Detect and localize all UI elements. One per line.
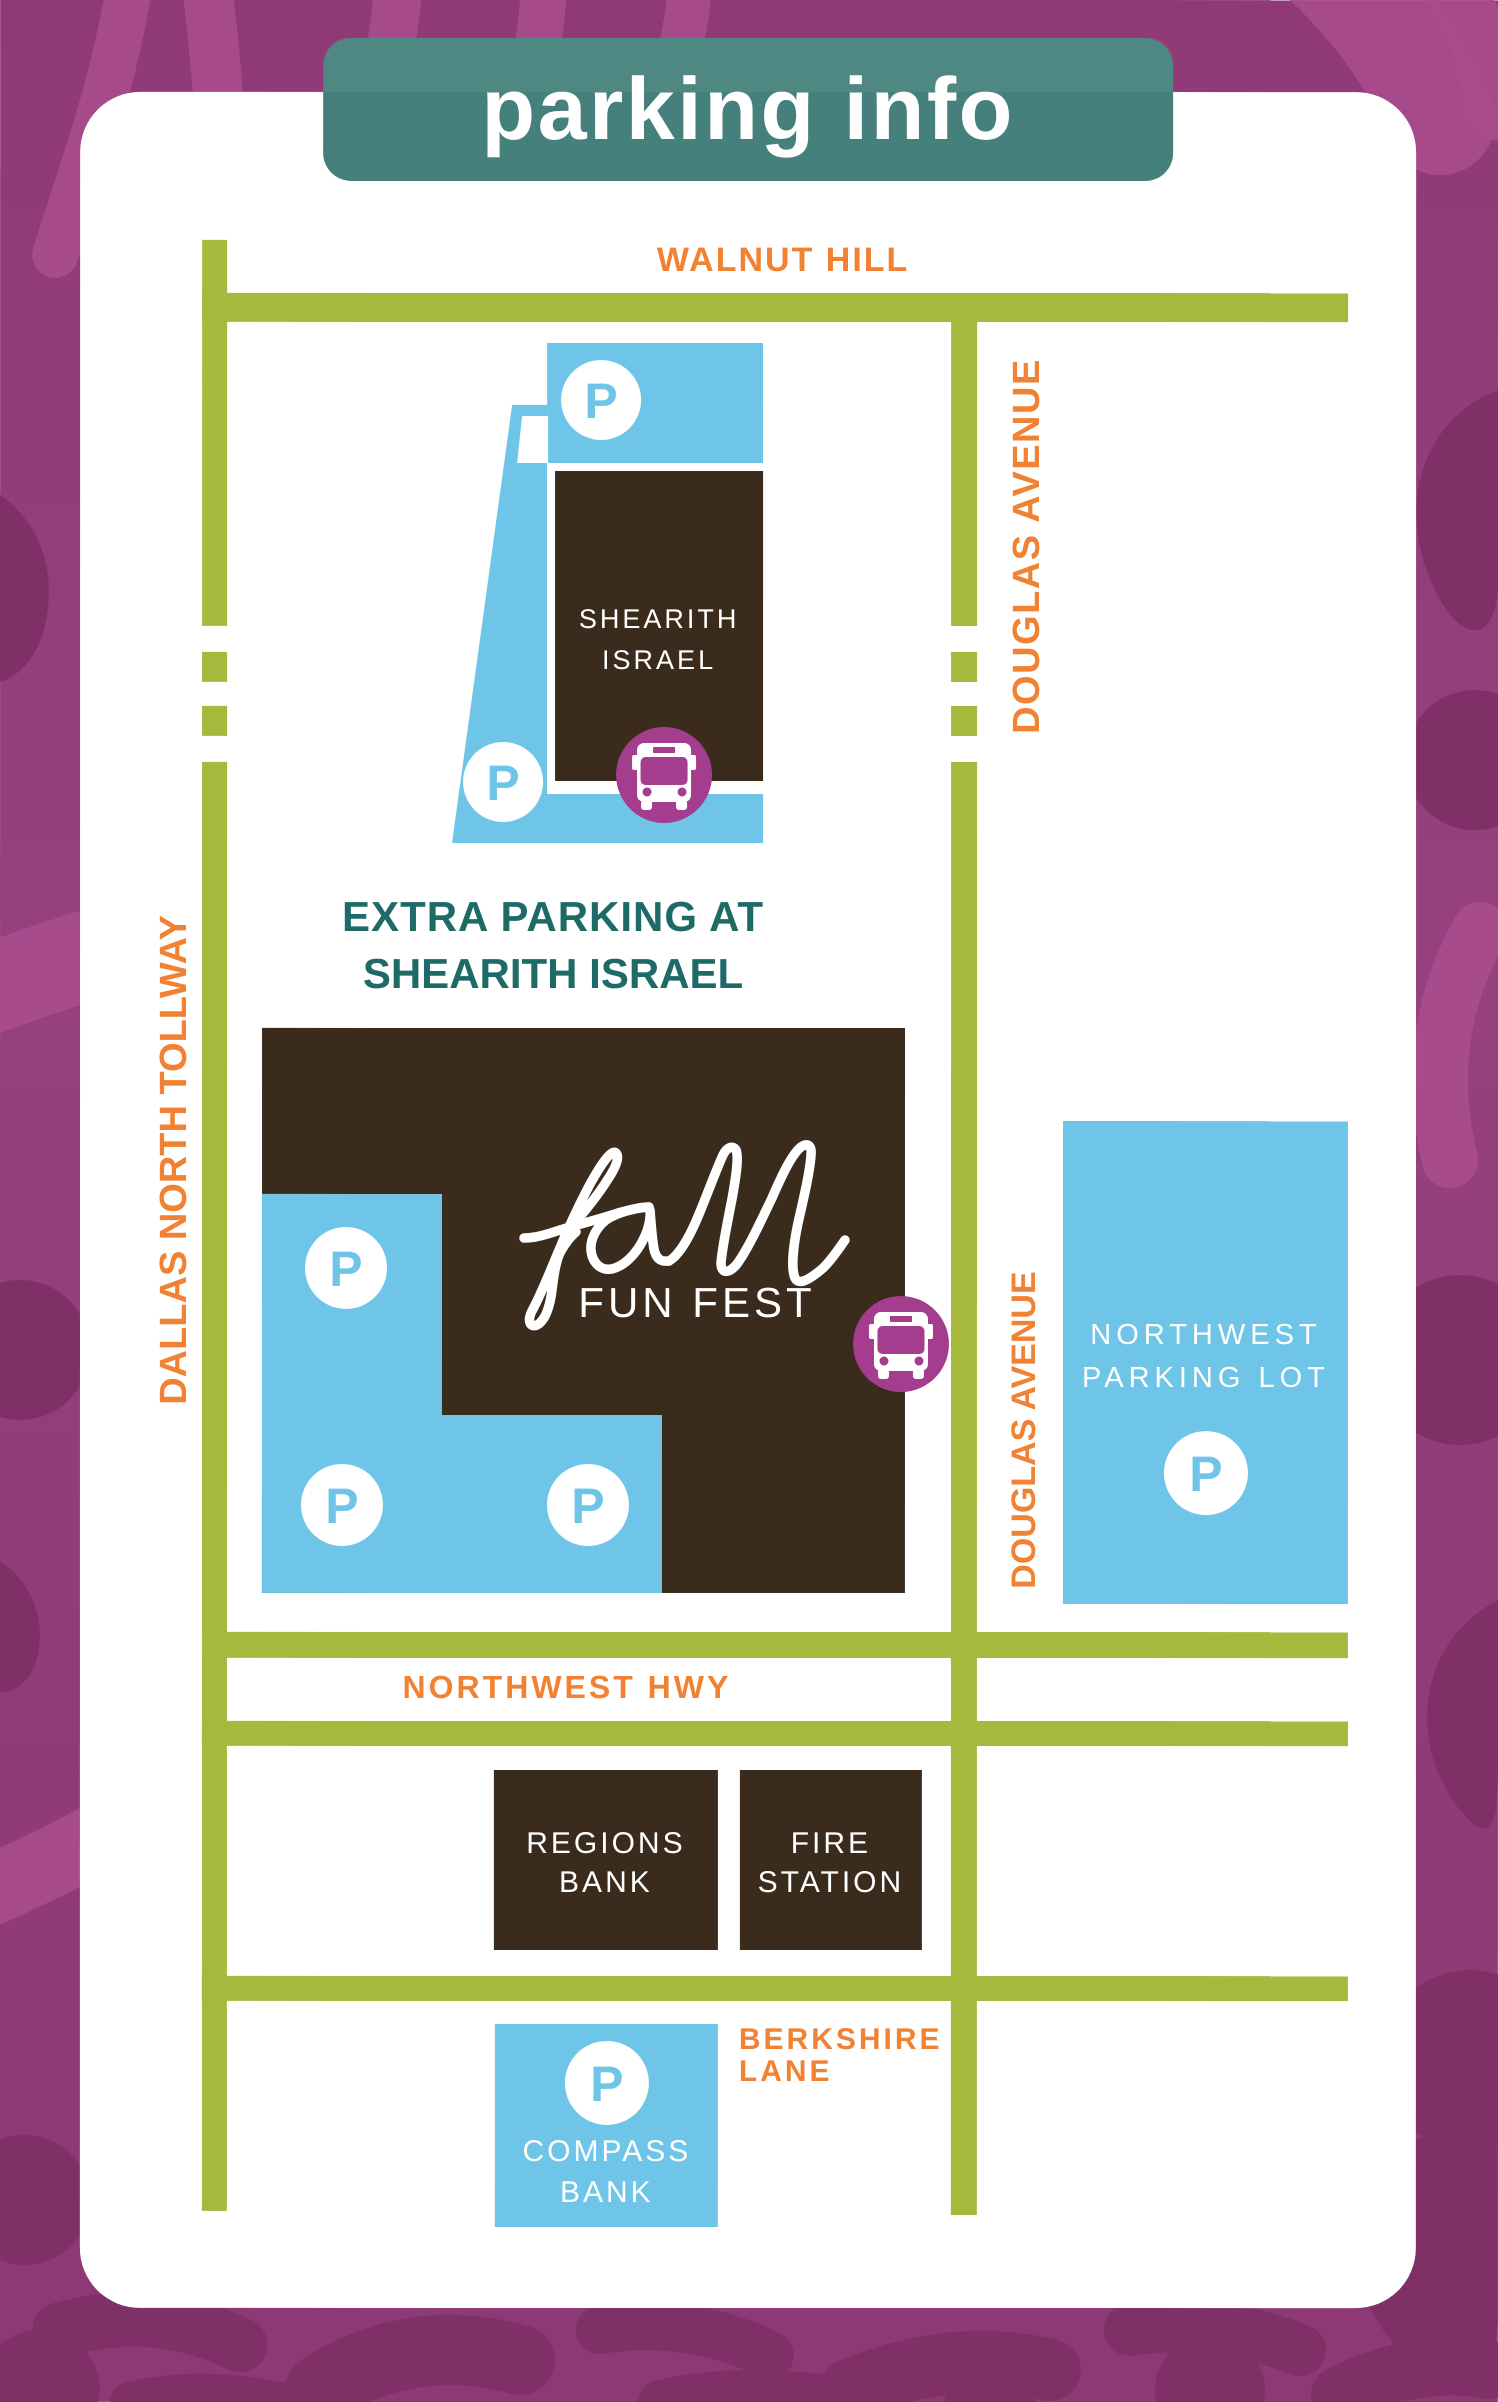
svg-text:LANE: LANE [739,2055,833,2088]
svg-text:BERKSHIRE: BERKSHIRE [739,2023,943,2056]
svg-text:COMPASS: COMPASS [522,2135,691,2168]
svg-text:ISRAEL: ISRAEL [602,645,716,675]
svg-text:DOUGLAS AVENUE: DOUGLAS AVENUE [1006,358,1048,734]
svg-text:P: P [584,373,617,429]
svg-text:P: P [1189,1446,1222,1502]
svg-text:BANK: BANK [560,2176,654,2209]
svg-text:P: P [486,755,519,811]
svg-text:P: P [329,1241,362,1297]
svg-text:EXTRA PARKING AT: EXTRA PARKING AT [342,893,764,940]
svg-text:BANK: BANK [559,1866,653,1899]
svg-text:WALNUT HILL: WALNUT HILL [657,241,909,279]
svg-text:NORTHWEST HWY: NORTHWEST HWY [403,1669,732,1705]
svg-text:PARKING LOT: PARKING LOT [1082,1362,1330,1394]
svg-text:FUN FEST: FUN FEST [578,1279,815,1326]
svg-text:NORTHWEST: NORTHWEST [1090,1319,1321,1351]
svg-text:STATION: STATION [758,1866,905,1899]
svg-text:SHEARITH ISRAEL: SHEARITH ISRAEL [363,950,743,997]
svg-text:FIRE: FIRE [791,1827,871,1860]
svg-text:REGIONS: REGIONS [526,1827,685,1860]
svg-text:SHEARITH: SHEARITH [579,604,740,634]
svg-text:DOUGLAS AVENUE: DOUGLAS AVENUE [1005,1271,1043,1588]
svg-text:P: P [590,2056,623,2112]
svg-text:P: P [325,1478,358,1534]
svg-text:parking info: parking info [481,59,1015,158]
svg-text:P: P [571,1478,604,1534]
svg-text:DALLAS NORTH TOLLWAY: DALLAS NORTH TOLLWAY [153,915,195,1405]
